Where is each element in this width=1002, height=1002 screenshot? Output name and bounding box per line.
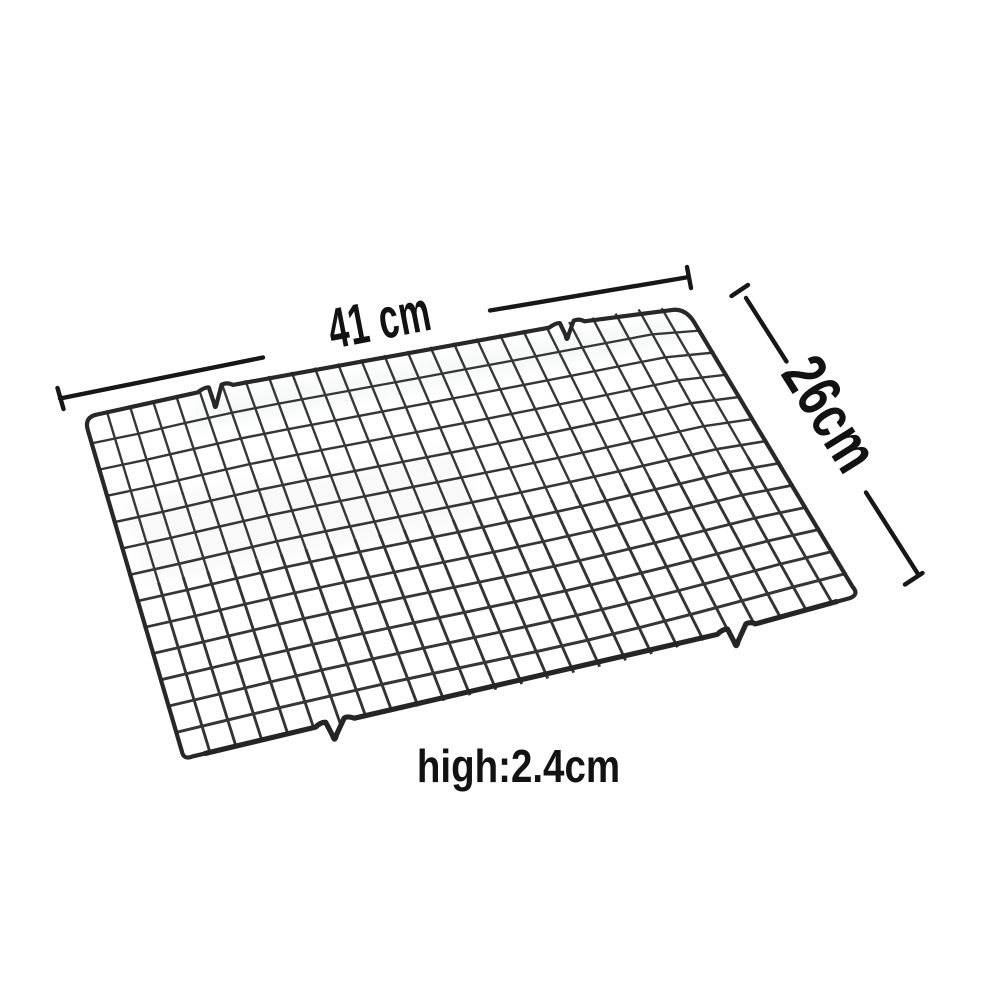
svg-text:high:2.4cm: high:2.4cm <box>417 741 620 793</box>
